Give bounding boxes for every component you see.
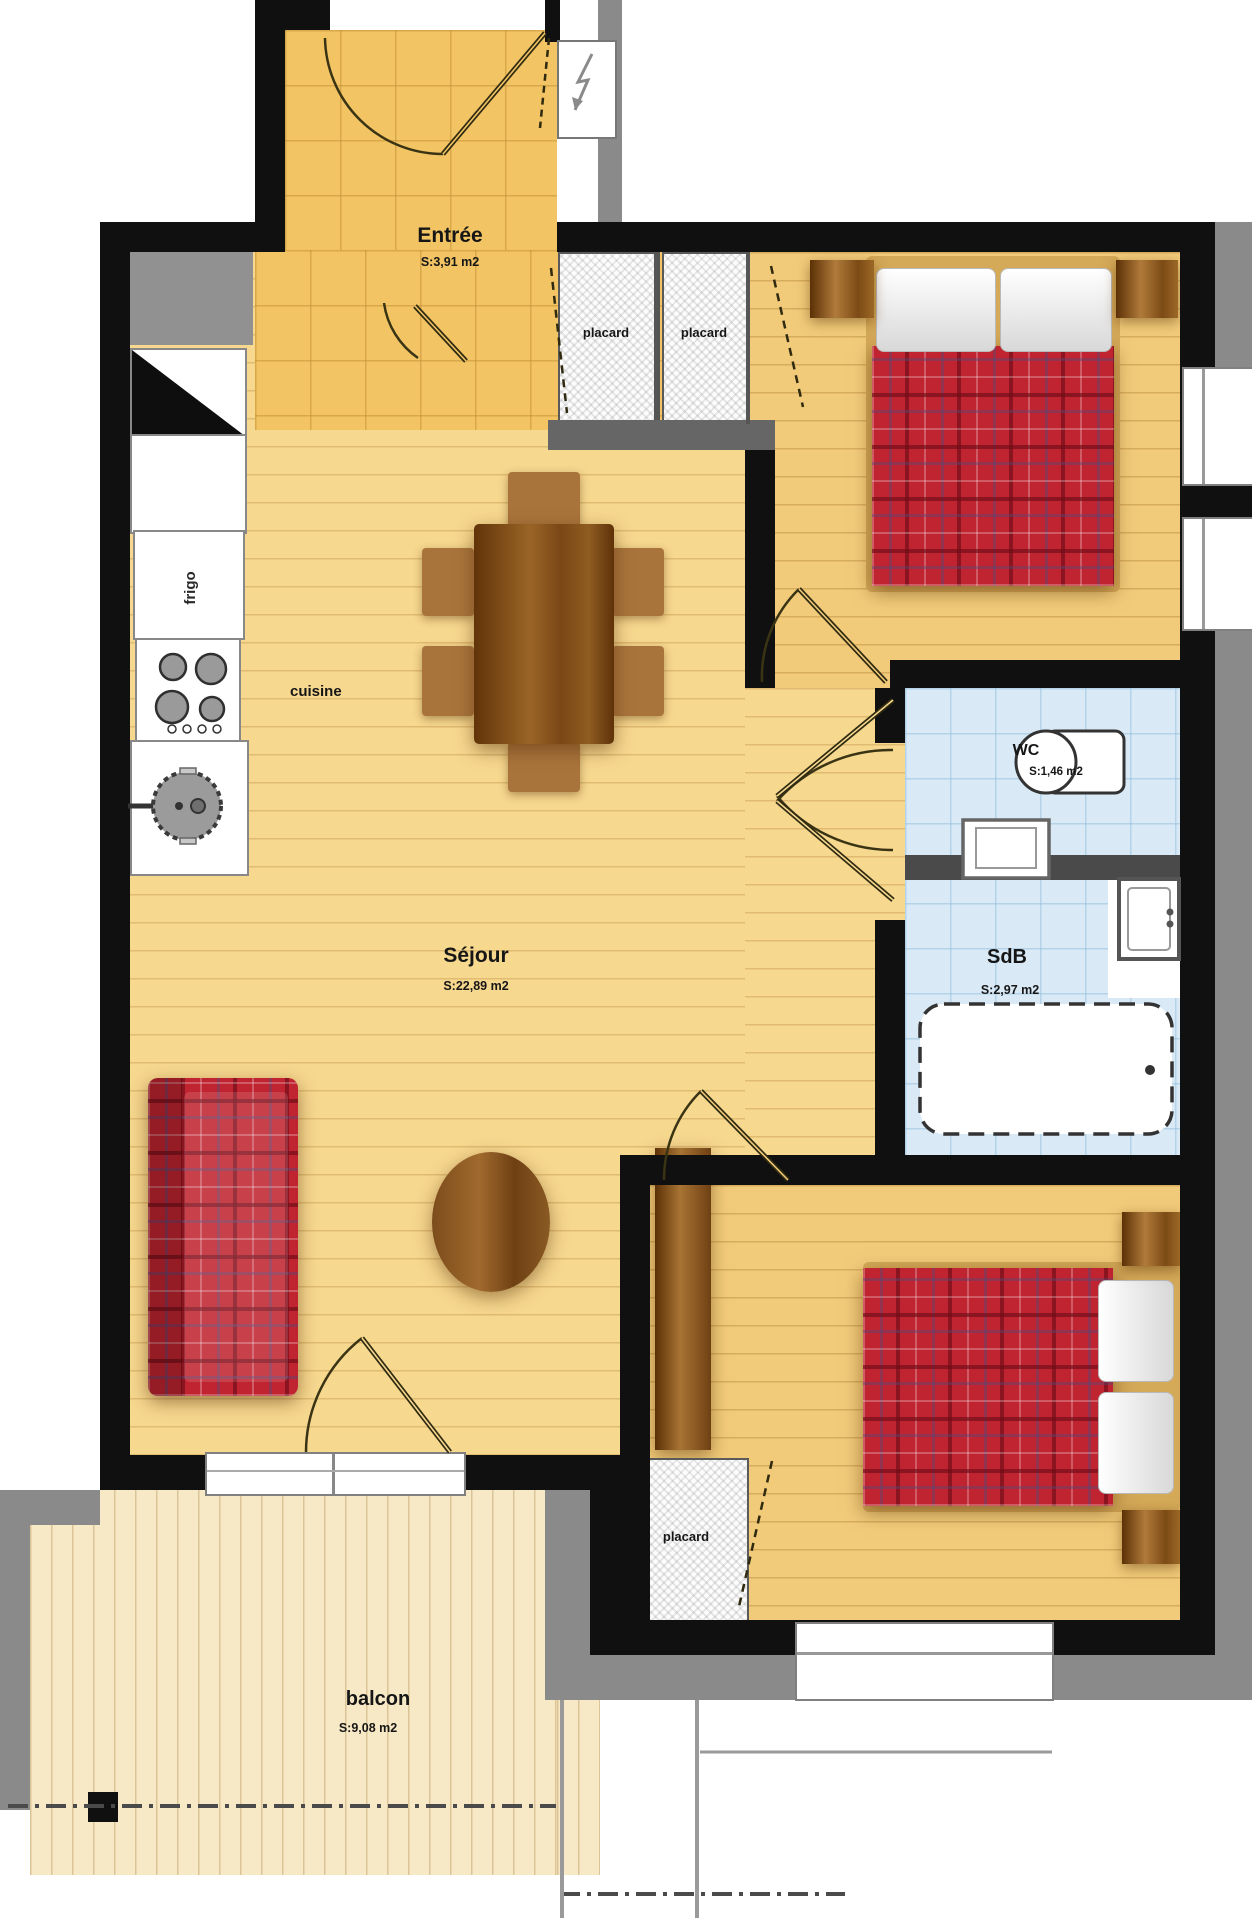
bedroom2-door-leaf-inner	[701, 1091, 788, 1180]
hand-basin	[963, 820, 1049, 878]
sdb-door-leaf-inner	[777, 801, 893, 900]
plan-linework	[0, 0, 1252, 1920]
label-closet-3: placard	[663, 1530, 709, 1544]
front-door-second-leaf	[540, 38, 549, 128]
sink-faucet-base	[175, 802, 183, 810]
closet-bedroom2-door	[738, 1461, 772, 1611]
room-area-sdb: S:2,97 m2	[981, 984, 1039, 998]
knob-3	[198, 725, 206, 733]
balcony-railings	[8, 1806, 845, 1894]
bathtub-drain	[1145, 1065, 1155, 1075]
sink-handle-bottom	[180, 838, 196, 844]
bedroom1-door-leaf-inner	[799, 589, 886, 682]
closet-doors	[551, 266, 803, 1611]
room-area-sejour: S:22,89 m2	[443, 980, 508, 994]
sink-handle-top	[180, 768, 196, 774]
room-label-sejour: Séjour	[443, 944, 508, 967]
lightning-icon	[572, 54, 592, 110]
room-label-balcon: balcon	[346, 1688, 410, 1710]
bathtub	[920, 1004, 1172, 1134]
room-label-sdb: SdB	[987, 946, 1027, 968]
floor-plan: Entrée S:3,91 m2 Séjour S:22,89 m2 cuisi…	[0, 0, 1252, 1920]
sink-drain	[191, 799, 205, 813]
knob-4	[213, 725, 221, 733]
knob-2	[183, 725, 191, 733]
closet-left-door	[551, 268, 567, 413]
stove-burners	[156, 654, 226, 723]
knob-1	[168, 725, 176, 733]
bedroom2-door-arc	[664, 1091, 701, 1180]
toilet-bowl	[1016, 731, 1076, 793]
kitchen-sink	[128, 768, 221, 844]
sink-basin	[153, 772, 221, 840]
balcony-door-arc	[306, 1338, 362, 1452]
front-door-arc	[325, 38, 443, 154]
washbasin-tap-2	[1167, 921, 1174, 928]
washbasin-tap-1	[1167, 909, 1174, 916]
front-door-leaf-inner	[443, 33, 545, 154]
burner-2	[196, 654, 226, 684]
balcony-door-leaf-inner	[362, 1338, 450, 1452]
label-cuisine: cuisine	[290, 684, 342, 701]
room-area-entree: S:3,91 m2	[421, 256, 479, 270]
room-area-wc: S:1,46 m2	[1029, 766, 1083, 779]
room-label-wc: WC	[1013, 742, 1040, 760]
sdb-door-arc	[777, 750, 893, 801]
room-label-entree: Entrée	[417, 224, 482, 247]
washbasin	[1119, 879, 1179, 959]
entree-door-leaf-inner	[415, 306, 466, 361]
room-area-balcon: S:9,08 m2	[339, 1722, 397, 1736]
label-frigo: frigo	[168, 548, 212, 628]
toilet	[1016, 731, 1124, 793]
stove-knobs	[168, 725, 221, 733]
bedroom1-door-arc	[762, 589, 799, 682]
closet-right-door	[771, 266, 803, 407]
bathtub-body	[920, 1004, 1172, 1134]
burner-4	[200, 697, 224, 721]
wc-door-arc	[777, 796, 893, 850]
door-arcs	[306, 38, 893, 1452]
label-closet-2: placard	[681, 326, 727, 340]
label-closet-1: placard	[583, 326, 629, 340]
burner-3	[156, 691, 188, 723]
burner-1	[160, 654, 186, 680]
entree-door-arc	[384, 303, 418, 358]
wc-door-leaf-inner	[777, 700, 893, 796]
exterior-sills	[562, 1700, 1052, 1918]
